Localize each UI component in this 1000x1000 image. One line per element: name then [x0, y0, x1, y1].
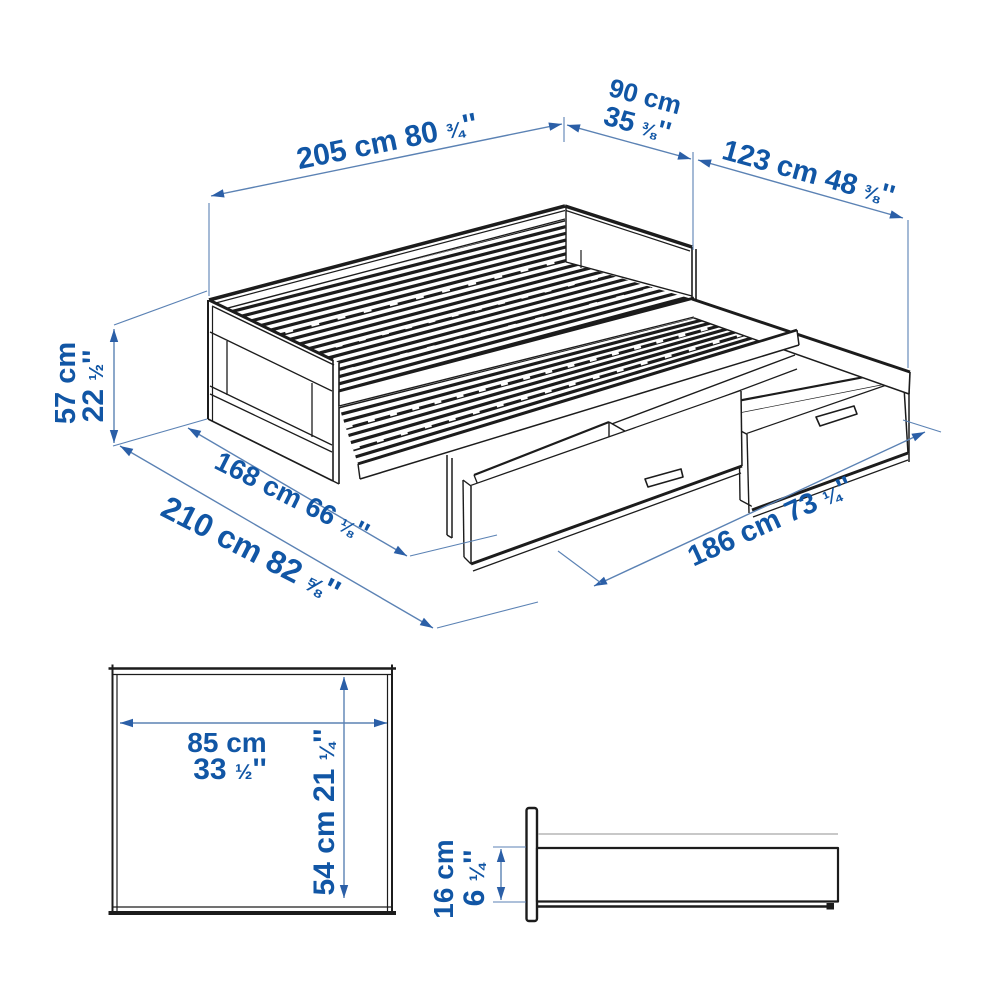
svg-text:16 cm: 16 cm: [428, 839, 459, 918]
svg-text:33 ½'': 33 ½'': [193, 753, 267, 786]
svg-text:6 ¼'': 6 ¼'': [458, 850, 491, 907]
svg-text:22 ½'': 22 ½'': [77, 350, 110, 423]
svg-text:205 cm 80 ¾'': 205 cm 80 ¾'': [294, 107, 480, 176]
